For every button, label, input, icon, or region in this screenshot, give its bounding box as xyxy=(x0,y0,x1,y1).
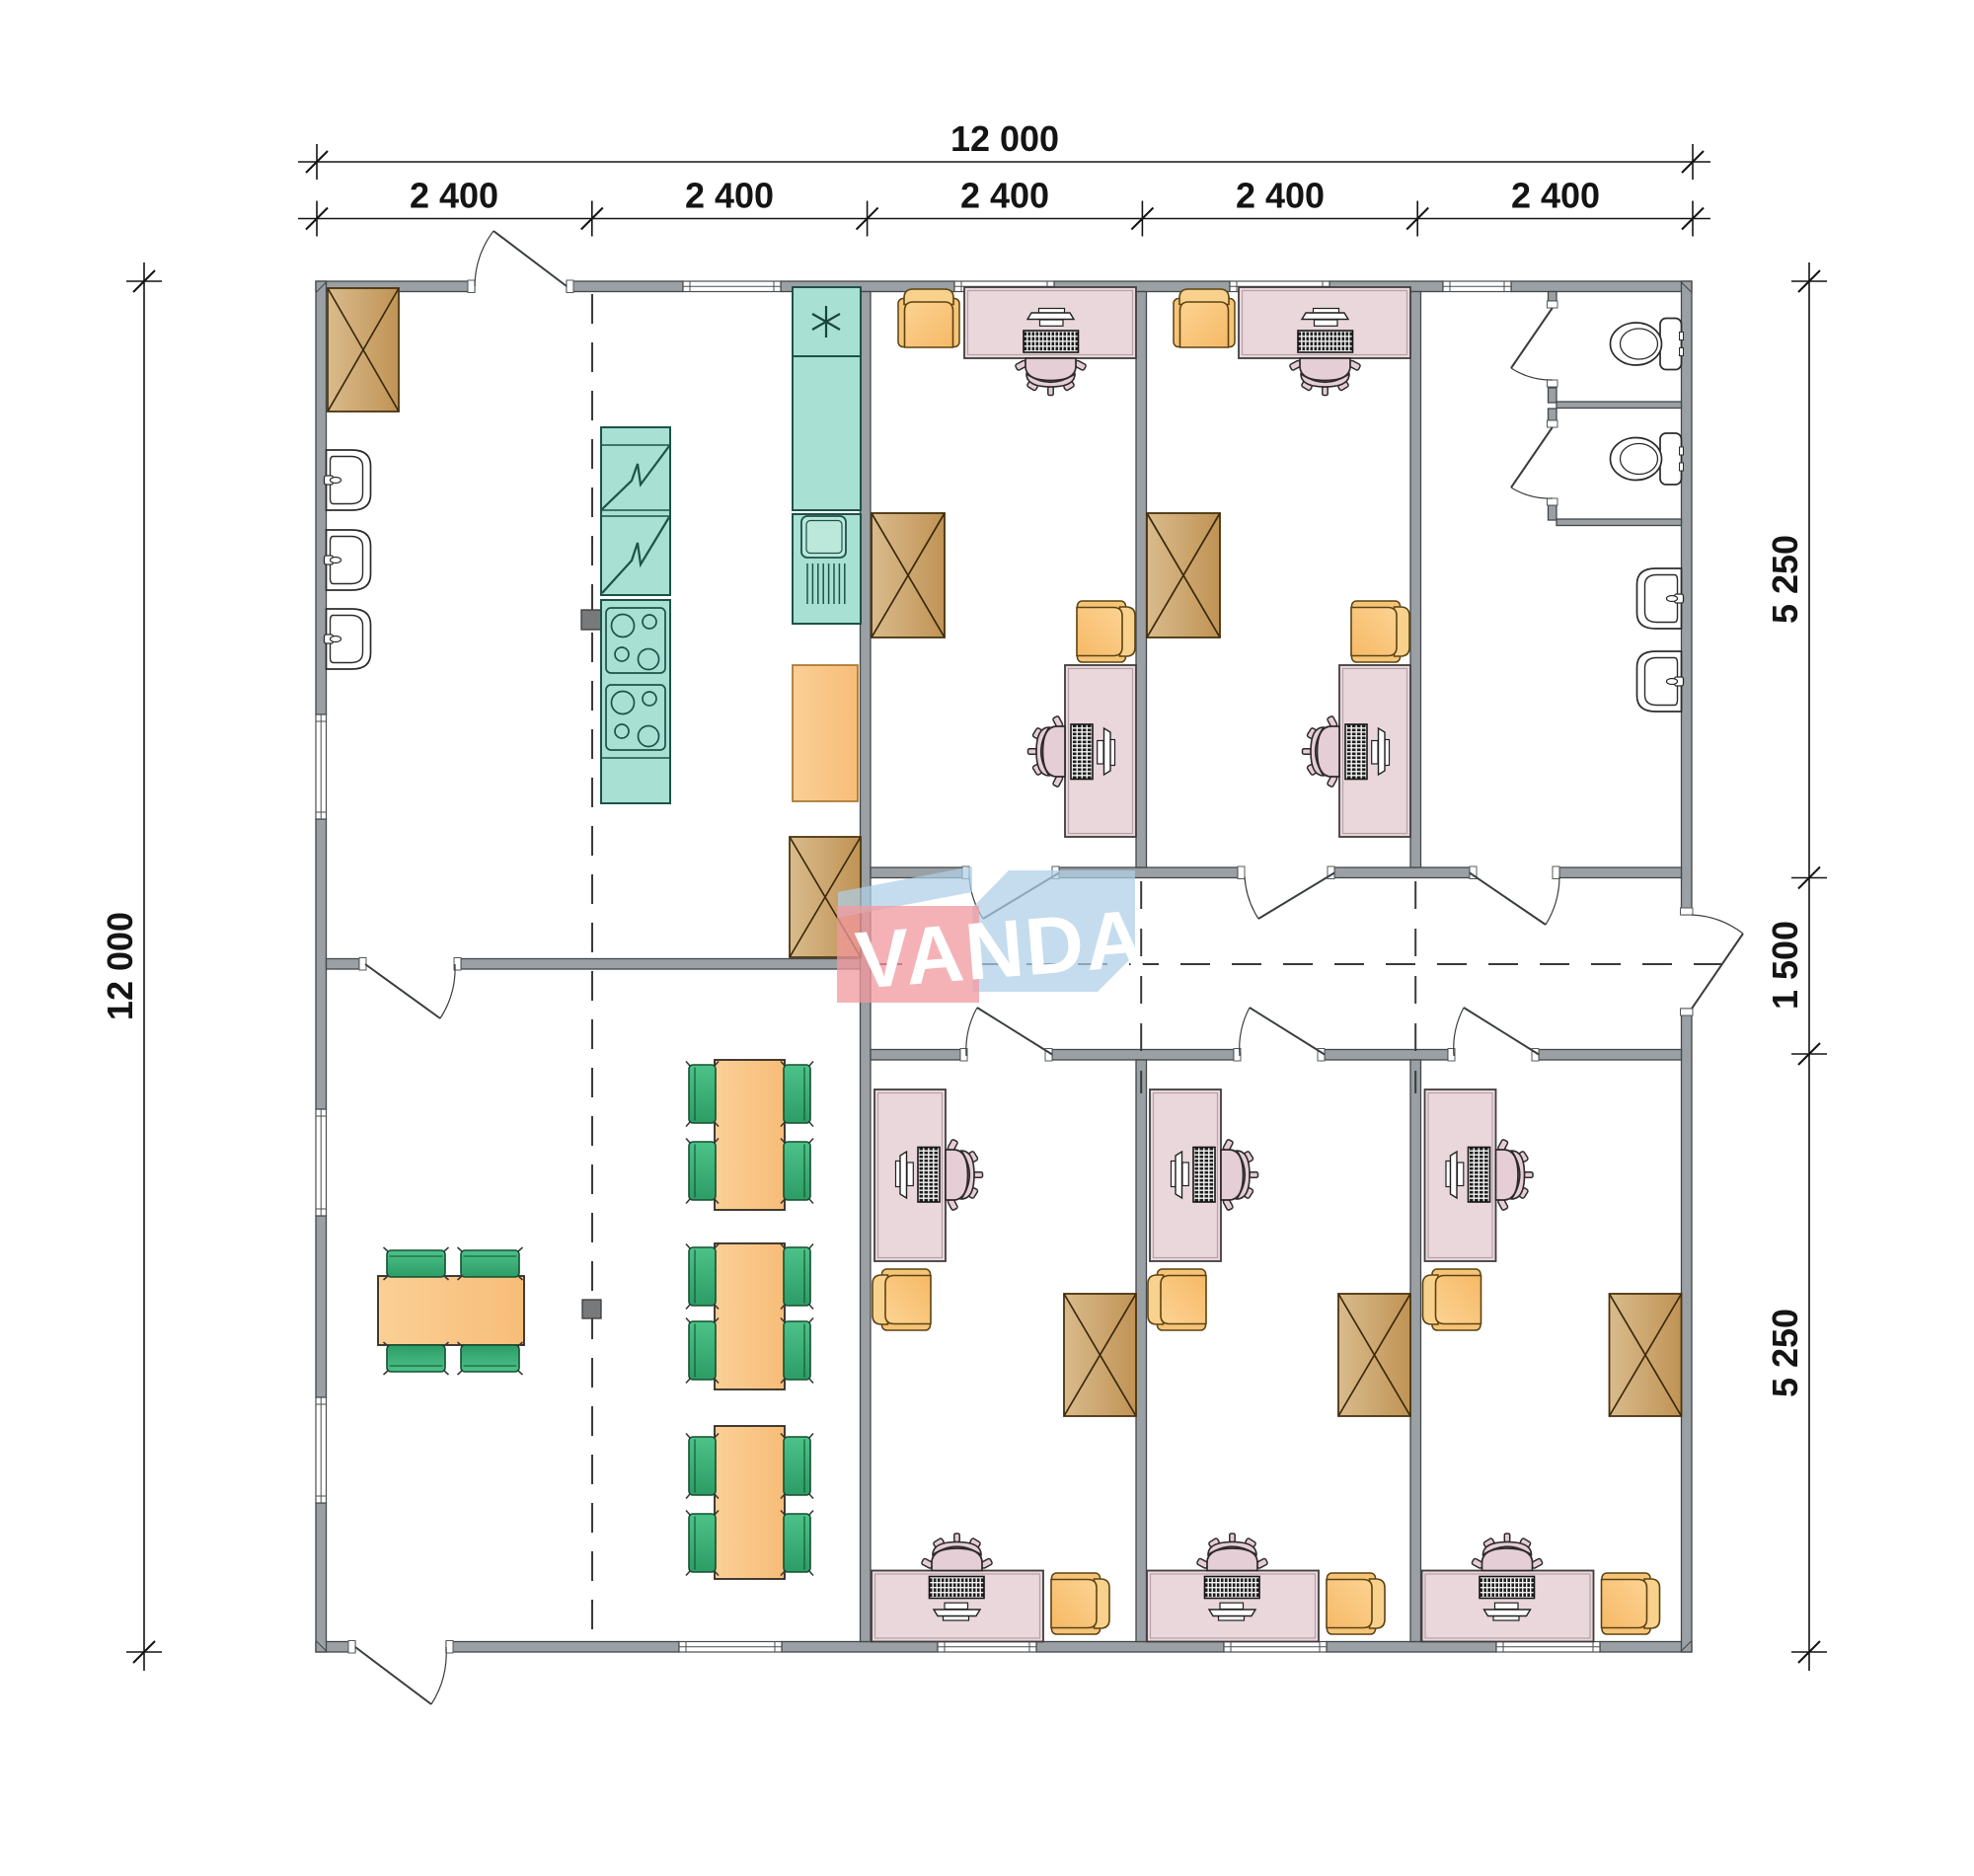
svg-text:12 000: 12 000 xyxy=(950,118,1059,159)
svg-text:2 400: 2 400 xyxy=(410,176,498,216)
svg-text:2 400: 2 400 xyxy=(1511,176,1600,216)
svg-text:2 400: 2 400 xyxy=(685,176,774,216)
svg-text:5 250: 5 250 xyxy=(1765,535,1805,624)
svg-text:2 400: 2 400 xyxy=(960,176,1049,216)
svg-text:1 500: 1 500 xyxy=(1765,921,1805,1010)
svg-text:5 250: 5 250 xyxy=(1765,1309,1805,1397)
svg-text:2 400: 2 400 xyxy=(1236,176,1325,216)
svg-text:12 000: 12 000 xyxy=(100,912,140,1020)
